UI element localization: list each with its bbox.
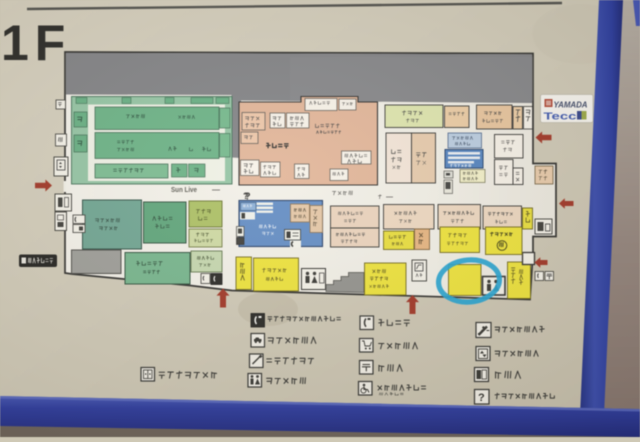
svg-text:?: ? <box>245 192 251 203</box>
svg-text:?: ? <box>478 392 485 404</box>
svg-text:Sun Live: Sun Live <box>171 187 197 194</box>
svg-text:Tecc: Tecc <box>544 112 578 123</box>
svg-text:1F: 1F <box>1 15 71 71</box>
svg-text:YAMADA: YAMADA <box>554 101 588 110</box>
